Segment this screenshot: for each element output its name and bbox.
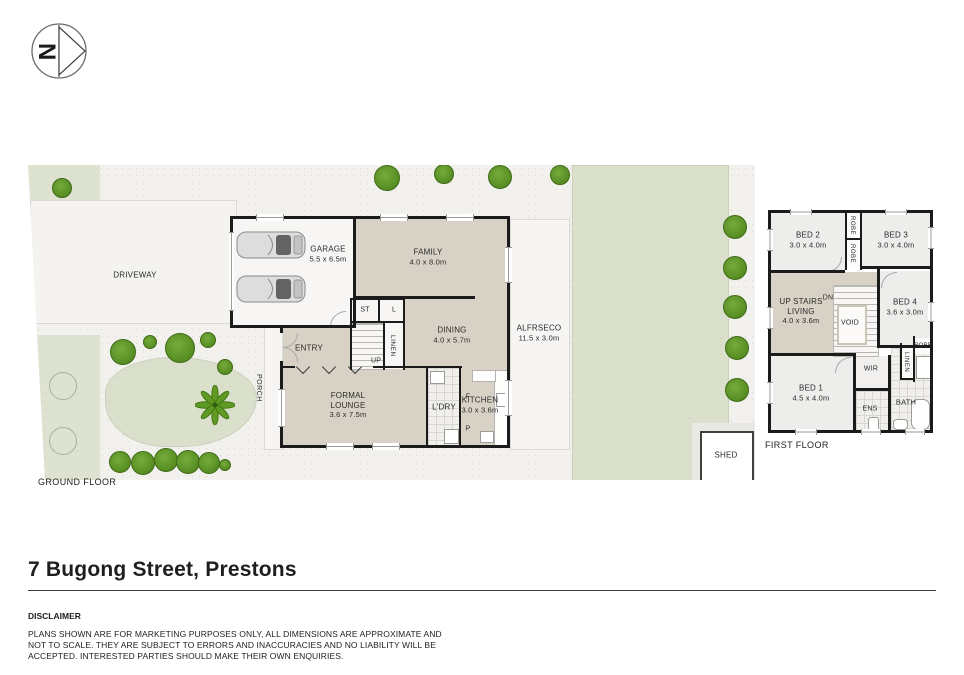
wall — [888, 355, 891, 433]
wall — [900, 378, 915, 380]
window — [380, 214, 408, 221]
wall — [280, 325, 283, 333]
window — [278, 389, 285, 427]
wall — [860, 210, 862, 270]
linen-label: LINEN — [389, 330, 396, 362]
wall — [230, 325, 353, 328]
wall — [353, 216, 356, 328]
tree-outline-icon — [49, 427, 77, 455]
wall — [768, 353, 855, 356]
wall — [862, 266, 932, 269]
wall — [853, 388, 890, 391]
disclaimer-text: ACCEPTED. INTERESTED PARTIES SHOULD MAKE… — [28, 651, 343, 661]
tree-icon — [52, 178, 72, 198]
driveway-label: DRIVEWAY — [113, 270, 156, 280]
wall — [403, 366, 462, 368]
wall — [845, 210, 847, 270]
divider-line — [28, 590, 936, 591]
window — [229, 232, 234, 311]
tree-outline-icon — [49, 372, 77, 400]
compass-letter: N — [33, 43, 60, 60]
first-floor-caption: FIRST FLOOR — [765, 440, 829, 450]
window — [795, 429, 817, 435]
bed4-label: BED 43.6 x 3.0m — [886, 298, 923, 317]
tree-icon — [198, 452, 220, 474]
wall — [426, 368, 428, 448]
wall — [350, 298, 352, 370]
tree-icon — [154, 448, 178, 472]
family-label: FAMILY4.0 x 8.0m — [409, 248, 446, 267]
driveway-area — [30, 200, 237, 324]
tree-icon — [143, 335, 157, 349]
tree-icon — [131, 451, 155, 475]
alfresco-label: ALFRSECO11.5 x 3.0m — [517, 324, 562, 343]
wall — [900, 343, 902, 380]
tree-icon — [374, 165, 400, 191]
car-icon — [236, 229, 308, 261]
window — [905, 429, 925, 435]
stove-icon — [480, 431, 494, 443]
bed1-label: BED 14.5 x 4.0m — [792, 384, 829, 403]
tree-icon — [176, 450, 200, 474]
tree-icon — [434, 164, 454, 184]
window — [790, 209, 812, 215]
floorplan-page: N SHED PORCH ALFRSECO11.5 x 3.0m — [0, 0, 964, 675]
wall — [845, 238, 862, 240]
wall — [283, 366, 295, 368]
wall — [877, 268, 880, 348]
ground-floor-plan: SHED PORCH ALFRSECO11.5 x 3.0m — [28, 165, 755, 480]
tree-icon — [110, 339, 136, 365]
porch-label: PORCH — [255, 365, 262, 411]
tree-icon — [723, 215, 747, 239]
wall — [459, 368, 461, 448]
shower-icon — [916, 356, 931, 379]
disclaimer-heading: DISCLAIMER — [28, 611, 81, 621]
wall — [913, 336, 915, 382]
wall — [403, 298, 405, 370]
robe-label: ROBE — [849, 215, 855, 237]
window — [505, 380, 512, 416]
fridge-label: F — [466, 394, 470, 401]
first-floor-plan: BED 23.0 x 4.0m BED 33.0 x 4.0m BED 43.6… — [765, 207, 937, 442]
wir-label: WIR — [864, 366, 878, 373]
laundry-tub-icon — [430, 371, 445, 384]
entry-label: ENTRY — [295, 343, 323, 353]
dining-label: DINING4.0 x 5.7m — [433, 326, 470, 345]
compass-north-icon: N — [30, 22, 88, 80]
window — [861, 429, 881, 435]
window — [446, 214, 474, 221]
bed3-label: BED 33.0 x 4.0m — [877, 231, 914, 250]
car-icon — [236, 273, 308, 305]
window — [767, 382, 773, 404]
pantry-label: P — [466, 426, 471, 433]
bath-label: BATH — [896, 398, 916, 407]
ens-label: ENS — [863, 406, 878, 413]
wall — [383, 323, 385, 370]
tree-icon — [550, 165, 570, 185]
kitchen-bench-top — [472, 370, 496, 382]
formal-lounge-label: FORMAL LOUNGE3.6 x 7.5m — [320, 391, 376, 420]
up-label: UP — [371, 358, 381, 365]
disclaimer-text: PLANS SHOWN ARE FOR MARKETING PURPOSES O… — [28, 629, 442, 639]
tree-icon — [723, 256, 747, 280]
tree-icon — [725, 378, 749, 402]
tree-icon — [109, 451, 131, 473]
tree-icon — [217, 359, 233, 375]
robe-label: ROBE — [849, 243, 855, 265]
wall — [350, 321, 405, 323]
page-title: 7 Bugong Street, Prestons — [28, 558, 297, 582]
dn-label: DN — [823, 295, 834, 302]
window — [256, 214, 284, 221]
tree-icon — [488, 165, 512, 189]
window — [372, 443, 400, 450]
tree-icon — [165, 333, 195, 363]
window — [505, 247, 512, 283]
bed2-label: BED 23.0 x 4.0m — [789, 231, 826, 250]
ground-floor-caption: GROUND FLOOR — [38, 477, 116, 487]
wall — [230, 216, 233, 232]
void-label: VOID — [841, 320, 859, 327]
window — [767, 229, 773, 251]
disclaimer-text: NOT TO SCALE. THEY ARE SUBJECT TO ERRORS… — [28, 640, 436, 650]
tree-icon — [725, 336, 749, 360]
wall — [378, 300, 380, 323]
tree-icon — [200, 332, 216, 348]
tree-icon — [723, 295, 747, 319]
window — [885, 209, 907, 215]
garden-strip-left — [33, 335, 100, 480]
store-label: ST — [360, 307, 369, 314]
palm-tree-icon — [195, 385, 235, 425]
wall — [768, 270, 845, 273]
shed-label: SHED — [714, 450, 737, 460]
window — [767, 307, 773, 329]
window — [928, 302, 934, 322]
garage-label: GARAGE5.5 x 6.5m — [309, 245, 346, 264]
wall — [877, 345, 933, 348]
linen-label: LINEN — [903, 348, 909, 376]
tree-icon — [219, 459, 231, 471]
washer-icon — [444, 429, 459, 444]
wall — [853, 353, 856, 433]
window — [326, 443, 354, 450]
window — [928, 227, 934, 249]
l-closet-label: L — [392, 307, 396, 314]
